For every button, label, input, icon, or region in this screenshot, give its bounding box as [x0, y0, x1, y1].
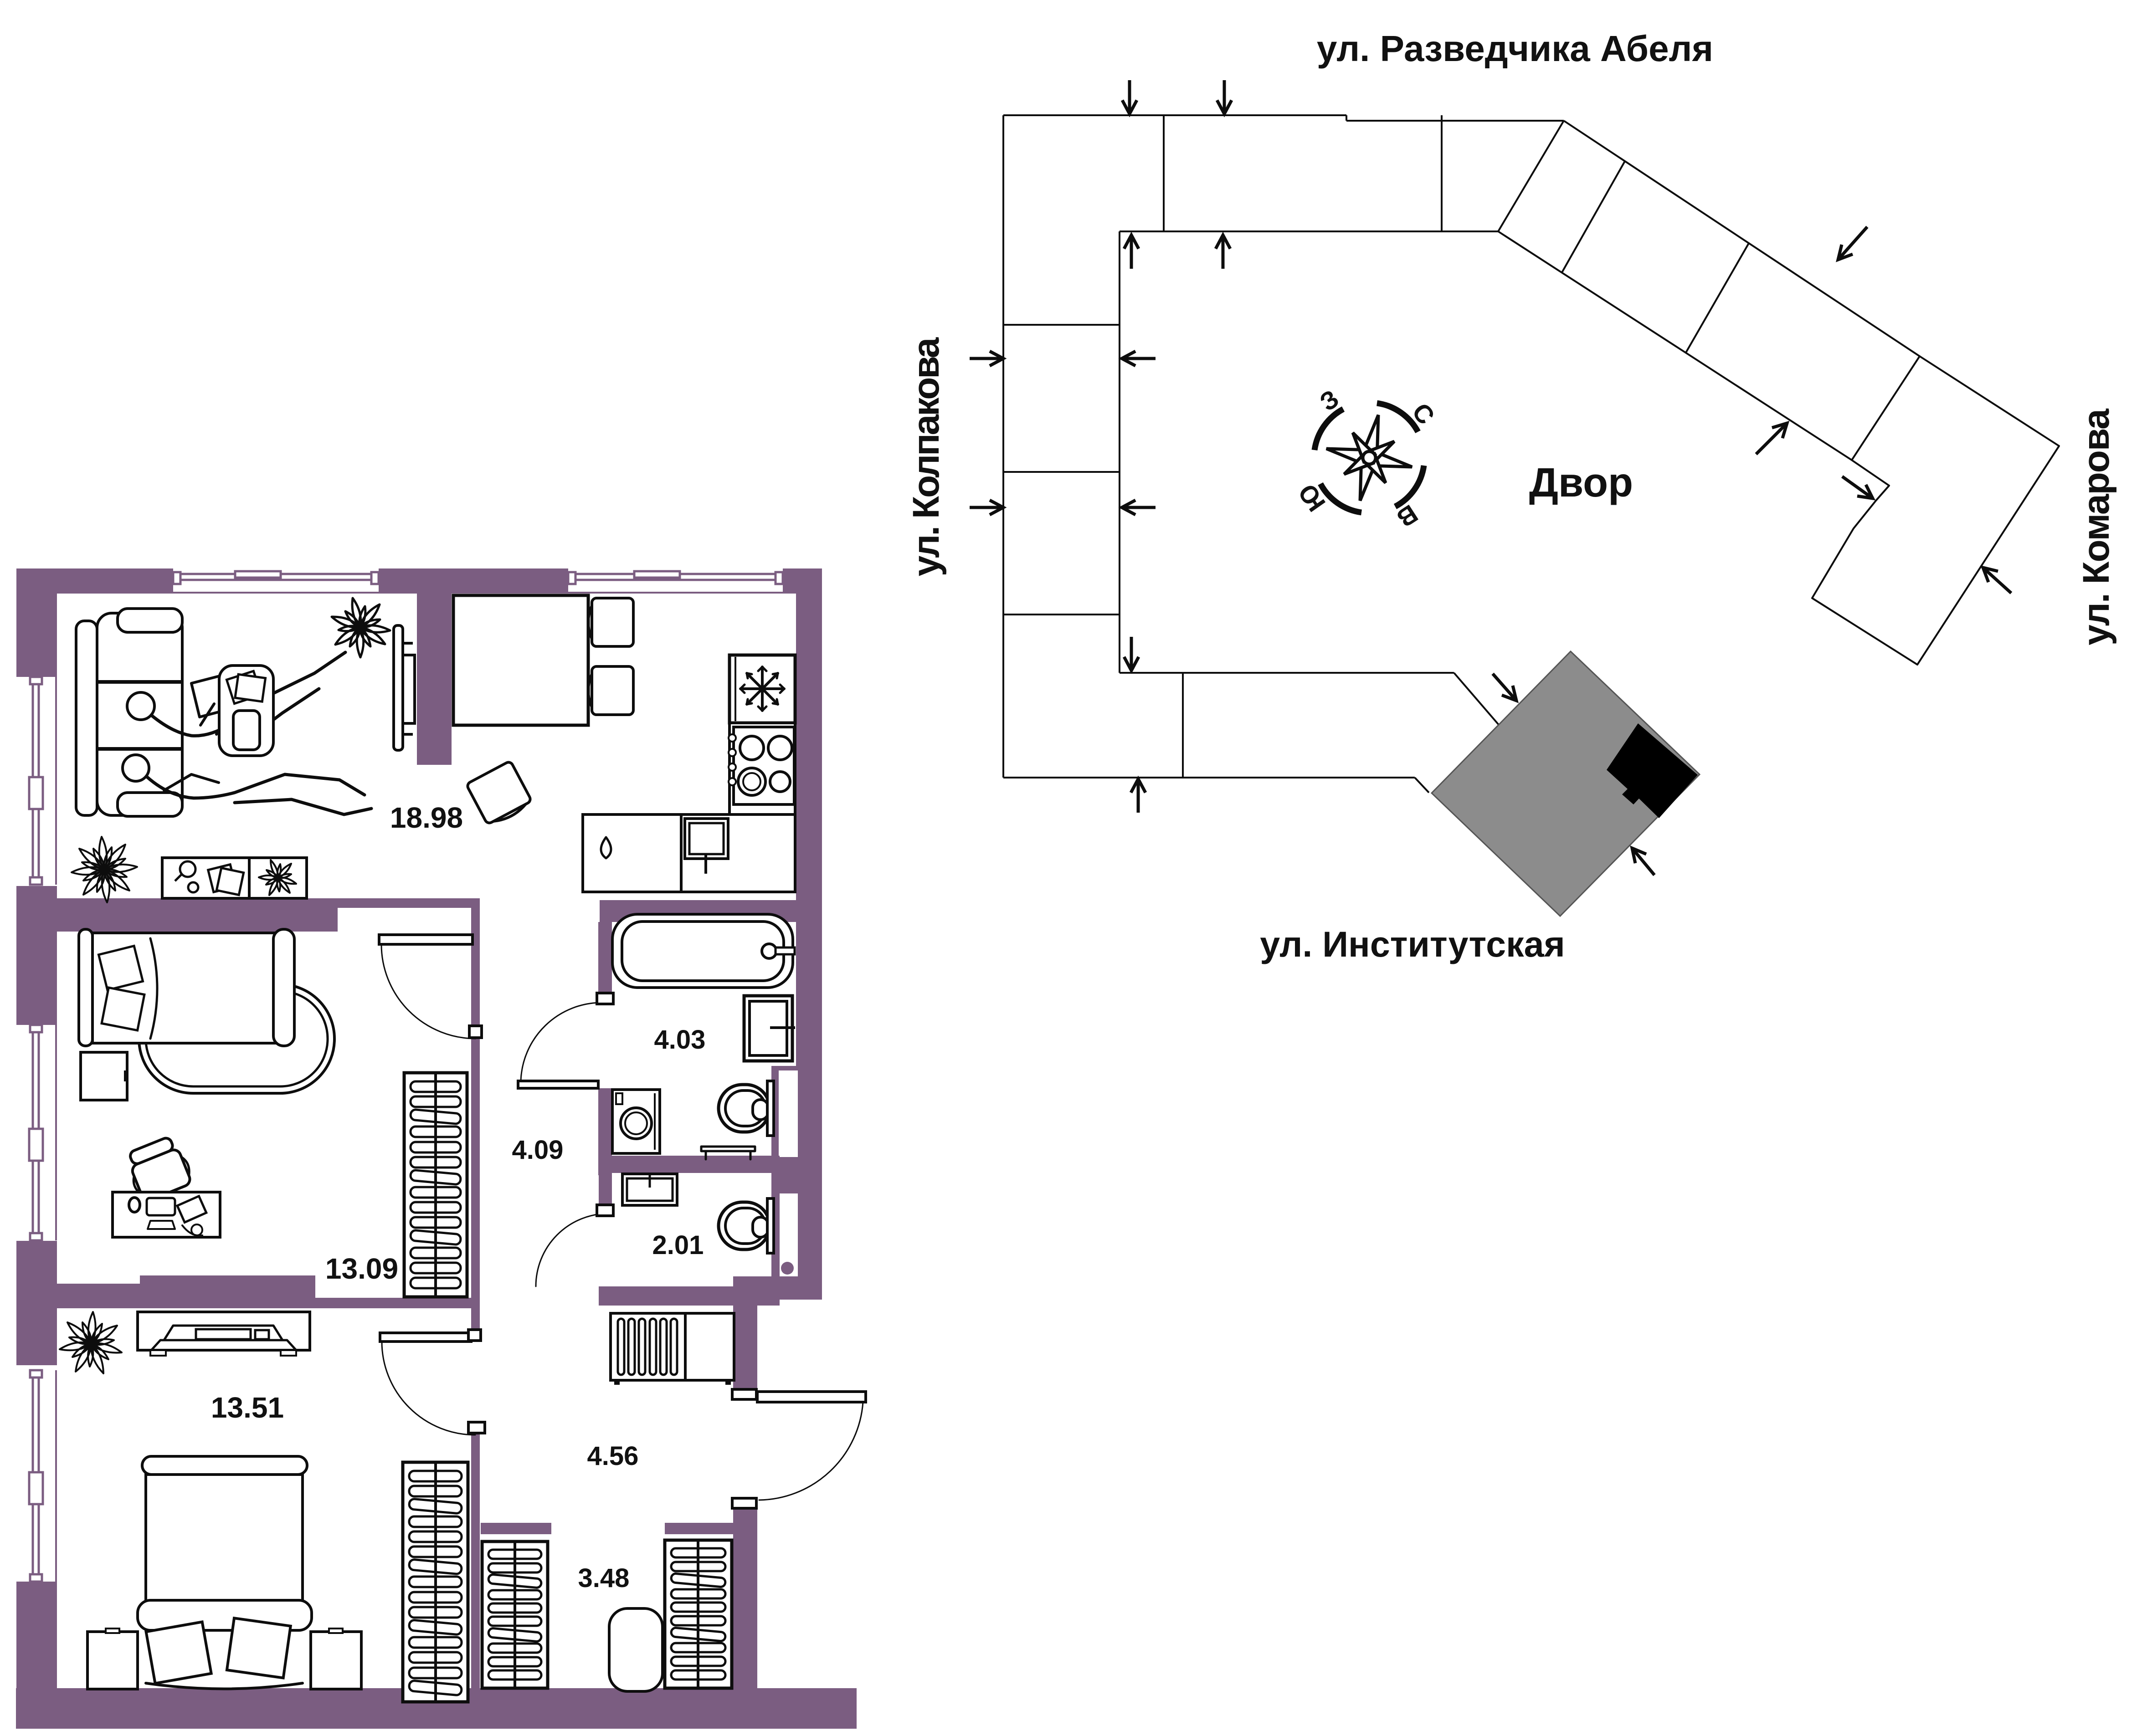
svg-text:Ю: Ю: [1292, 479, 1331, 517]
svg-text:18.98: 18.98: [390, 801, 463, 834]
svg-text:4.09: 4.09: [512, 1135, 564, 1165]
svg-text:2.01: 2.01: [652, 1230, 704, 1260]
svg-text:ул. Разведчика Абеля: ул. Разведчика Абеля: [1317, 28, 1713, 69]
svg-text:Двор: Двор: [1529, 460, 1633, 506]
svg-text:4.56: 4.56: [587, 1441, 639, 1471]
svg-text:3.48: 3.48: [578, 1563, 630, 1593]
svg-text:13.51: 13.51: [211, 1391, 284, 1424]
svg-text:ул. Комарова: ул. Комарова: [2075, 408, 2117, 645]
svg-text:ул. Колпакова: ул. Колпакова: [905, 337, 947, 576]
svg-text:13.09: 13.09: [325, 1252, 398, 1285]
svg-text:4.03: 4.03: [654, 1025, 706, 1055]
svg-text:ул. Институтская: ул. Институтская: [1260, 924, 1565, 964]
